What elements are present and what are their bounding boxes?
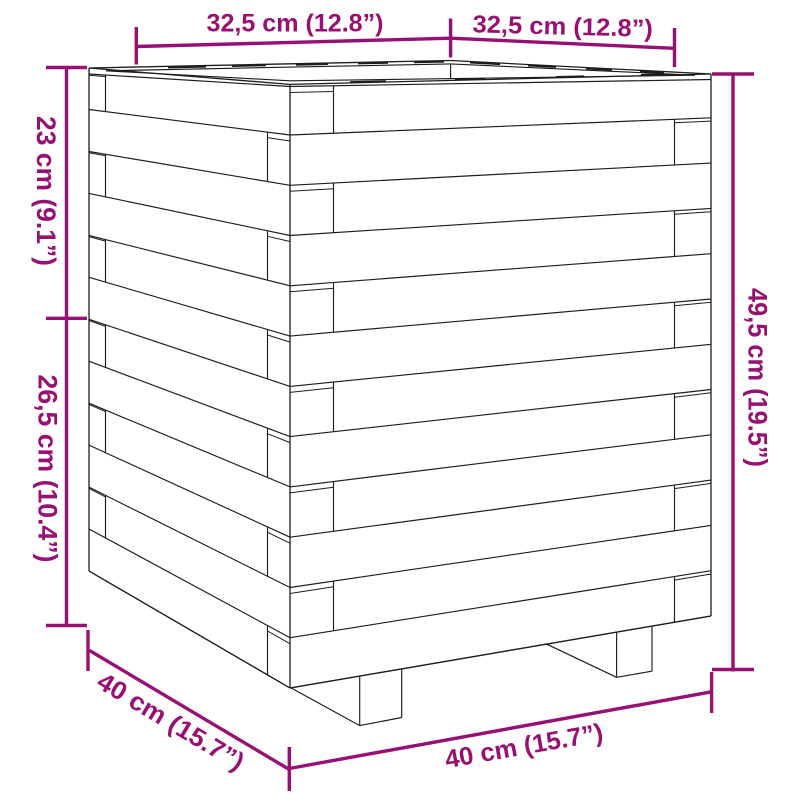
svg-text:26,5 cm (10.4”): 26,5 cm (10.4”) xyxy=(33,375,63,563)
svg-text:32,5 cm (12.8”): 32,5 cm (12.8”) xyxy=(207,10,384,37)
svg-text:23 cm (9.1”): 23 cm (9.1”) xyxy=(31,116,61,266)
svg-text:40 cm (15.7”): 40 cm (15.7”) xyxy=(92,667,249,776)
svg-text:49,5 cm (19.5”): 49,5 cm (19.5”) xyxy=(743,288,773,467)
svg-text:32,5 cm (12.8”): 32,5 cm (12.8”) xyxy=(472,11,653,43)
